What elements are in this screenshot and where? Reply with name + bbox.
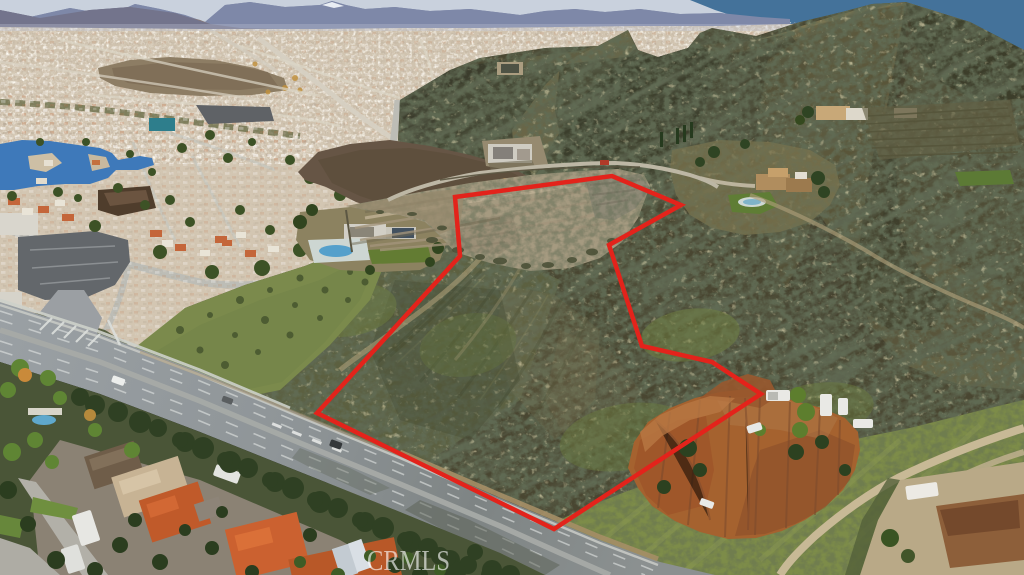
svg-text:CRMLS: CRMLS [367,545,450,575]
